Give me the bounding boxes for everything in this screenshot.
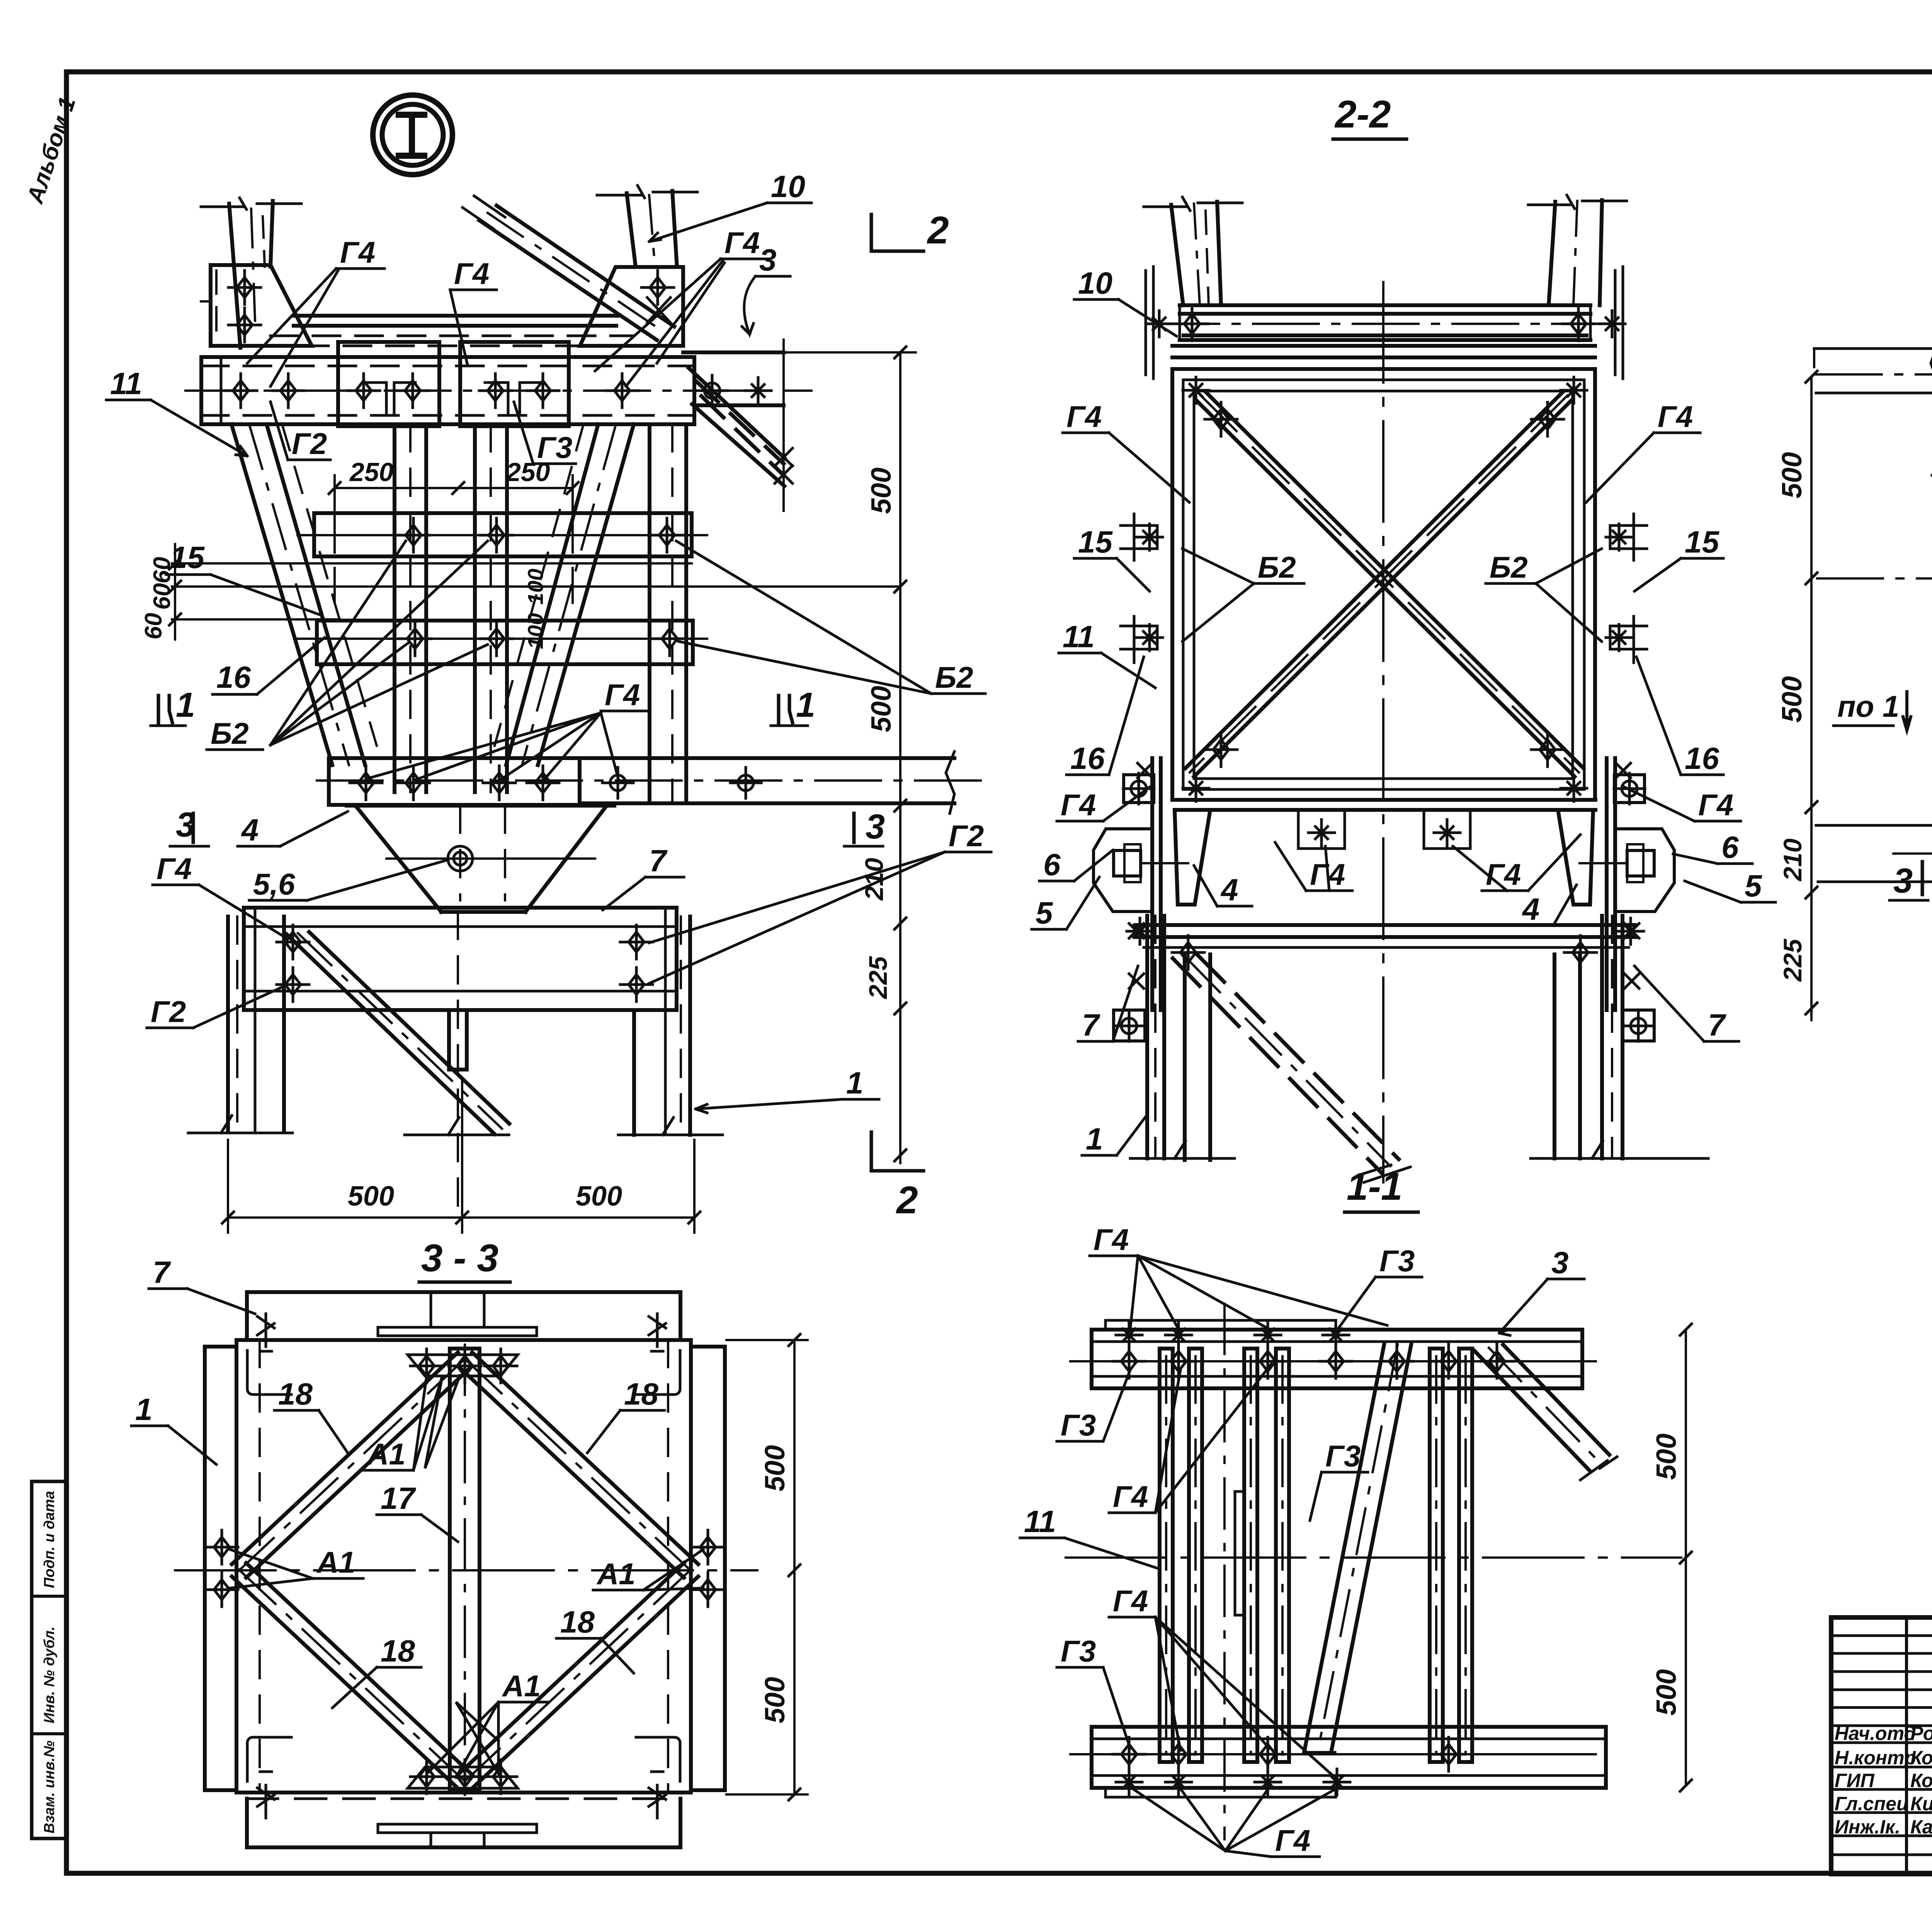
svg-text:500: 500 [1777,452,1808,498]
svg-text:Кирсанова: Кирсанова [1910,1793,1932,1815]
svg-text:5: 5 [1036,896,1053,930]
svg-text:4: 4 [1522,892,1540,926]
svg-text:100: 100 [523,569,548,605]
svg-text:500: 500 [866,468,897,514]
svg-text:Г4: Г4 [1094,1223,1129,1257]
svg-text:Б2: Б2 [1258,550,1296,584]
svg-text:1: 1 [796,686,815,724]
svg-text:Г2: Г2 [292,427,327,461]
svg-text:А1: А1 [596,1557,636,1591]
svg-text:17: 17 [381,1481,416,1515]
svg-text:10: 10 [771,169,805,204]
svg-text:5,6: 5,6 [253,867,295,901]
svg-text:18: 18 [624,1377,658,1411]
svg-text:Г3: Г3 [1325,1439,1361,1473]
svg-text:Гл.спец: Гл.спец [1835,1793,1909,1815]
svg-text:500: 500 [1651,1434,1682,1480]
svg-text:4: 4 [241,813,259,847]
svg-text:3: 3 [1551,1245,1569,1280]
svg-text:Г3: Г3 [1061,1634,1096,1668]
svg-text:Альбом 1: Альбом 1 [22,94,80,207]
svg-text:ГИП: ГИП [1835,1770,1875,1791]
svg-text:Б2: Б2 [935,660,973,694]
svg-text:А1: А1 [502,1669,541,1703]
svg-text:Г2: Г2 [949,819,984,853]
svg-text:2-2: 2-2 [1334,93,1391,136]
svg-text:6: 6 [1043,847,1061,882]
svg-text:16: 16 [1070,741,1105,776]
svg-text:500: 500 [866,686,897,732]
svg-text:10: 10 [1078,266,1112,300]
svg-text:15: 15 [1078,525,1113,559]
svg-text:Г4: Г4 [156,852,192,886]
svg-text:Г3: Г3 [1379,1244,1415,1278]
svg-text:Г4: Г4 [605,678,640,712]
svg-text:Г2: Г2 [151,995,186,1029]
svg-text:Инж.Iк.: Инж.Iк. [1835,1816,1900,1838]
svg-text:1: 1 [176,686,195,724]
svg-text:225: 225 [864,956,892,1000]
svg-text:по 1: по 1 [1837,689,1899,723]
svg-text:18: 18 [381,1634,415,1668]
svg-text:Г4: Г4 [1658,400,1693,434]
svg-text:11: 11 [110,366,142,401]
svg-text:Г4: Г4 [1066,400,1102,434]
svg-text:11: 11 [1063,619,1095,654]
svg-text:7: 7 [649,844,668,878]
svg-text:Г3: Г3 [1061,1408,1096,1442]
svg-text:Подп. и дата: Подп. и дата [41,1491,58,1588]
svg-text:Г4: Г4 [1113,1584,1148,1618]
svg-text:500: 500 [576,1181,622,1212]
svg-text:1-1: 1-1 [1347,1165,1403,1208]
svg-text:Г4: Г4 [1061,788,1096,822]
svg-text:11: 11 [1024,1504,1056,1539]
svg-text:250: 250 [349,457,394,487]
svg-text:Г4: Г4 [454,257,489,291]
svg-text:2: 2 [927,209,949,252]
svg-text:А1: А1 [316,1545,355,1579]
svg-text:Ковалев: Ковалев [1910,1747,1932,1769]
svg-text:18: 18 [278,1377,313,1411]
svg-text:Б2: Б2 [211,716,249,750]
svg-text:3: 3 [1893,862,1913,900]
svg-text:1: 1 [1086,1122,1103,1156]
svg-text:16: 16 [216,660,251,694]
svg-text:15: 15 [1685,525,1719,559]
svg-text:2: 2 [896,1179,918,1222]
svg-text:7: 7 [153,1255,171,1289]
svg-text:210: 210 [1778,838,1807,882]
svg-text:Г4: Г4 [724,226,760,260]
svg-text:1: 1 [846,1066,864,1100]
svg-text:Инв. № дубл.: Инв. № дубл. [41,1626,58,1723]
svg-text:500: 500 [1777,676,1808,723]
svg-text:60: 60 [149,583,175,610]
svg-text:18: 18 [560,1605,595,1639]
svg-text:6: 6 [1721,830,1739,864]
svg-text:Г4: Г4 [1698,788,1733,822]
svg-text:Н.контр: Н.контр [1835,1747,1916,1769]
svg-text:1: 1 [135,1392,153,1427]
svg-text:7: 7 [1082,1008,1100,1042]
svg-text:3 - 3: 3 - 3 [421,1236,498,1280]
svg-text:Б2: Б2 [1490,550,1528,584]
svg-text:Взам. инв.№: Взам. инв.№ [41,1741,58,1833]
svg-text:Ковалев: Ковалев [1910,1770,1932,1791]
svg-text:16: 16 [1685,741,1719,776]
svg-text:3: 3 [759,243,777,277]
svg-text:60: 60 [140,613,167,639]
svg-text:100: 100 [523,613,548,649]
svg-text:Г4: Г4 [1113,1480,1148,1514]
svg-text:А1: А1 [366,1437,406,1471]
svg-text:Роменский: Роменский [1910,1723,1932,1744]
svg-text:Калинько: Калинько [1910,1816,1932,1838]
svg-text:500: 500 [760,1677,791,1723]
svg-text:500: 500 [348,1181,394,1212]
svg-text:3: 3 [866,808,885,846]
svg-text:15: 15 [170,540,205,575]
svg-text:225: 225 [1778,939,1807,982]
svg-text:7: 7 [1708,1008,1726,1042]
svg-text:Г4: Г4 [1275,1823,1310,1857]
svg-text:Г4: Г4 [340,235,375,269]
svg-text:500: 500 [760,1445,791,1492]
svg-text:5: 5 [1745,869,1762,903]
svg-text:Нач.отд: Нач.отд [1835,1723,1916,1744]
svg-text:4: 4 [1220,872,1238,907]
svg-text:Г3: Г3 [537,430,572,464]
svg-text:3: 3 [176,806,195,844]
svg-text:500: 500 [1651,1669,1682,1716]
